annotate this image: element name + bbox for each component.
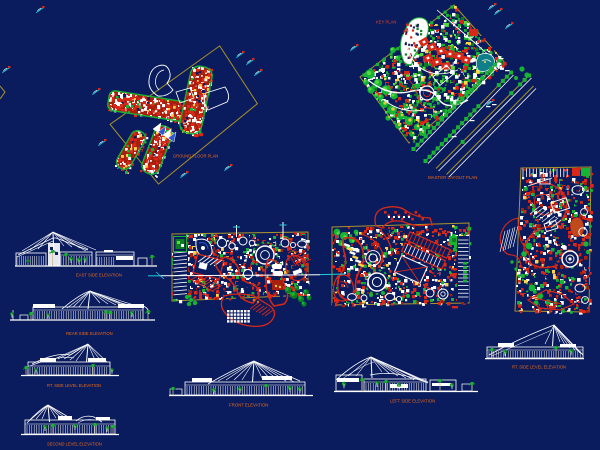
svg-text:RT. SIDE LEVEL ELEVATION: RT. SIDE LEVEL ELEVATION [47, 383, 101, 388]
svg-text:KEY PLAN: KEY PLAN [376, 20, 396, 25]
svg-text:LEFT SIDE ELEVATION: LEFT SIDE ELEVATION [390, 399, 435, 404]
svg-text:EAST SIDE ELEVATION: EAST SIDE ELEVATION [76, 273, 122, 278]
svg-text:REAR SIDE ELEVATION: REAR SIDE ELEVATION [66, 331, 113, 336]
svg-text:FRONT ELEVATION: FRONT ELEVATION [229, 403, 268, 408]
svg-text:RT. SIDE LEVEL ELEVATION: RT. SIDE LEVEL ELEVATION [512, 365, 566, 370]
svg-text:SECOND LEVEL ELEVATION: SECOND LEVEL ELEVATION [47, 442, 102, 447]
svg-text:GROUND FLOOR PLAN: GROUND FLOOR PLAN [173, 154, 218, 159]
svg-text:MASTER LAYOUT PLAN: MASTER LAYOUT PLAN [428, 175, 477, 180]
